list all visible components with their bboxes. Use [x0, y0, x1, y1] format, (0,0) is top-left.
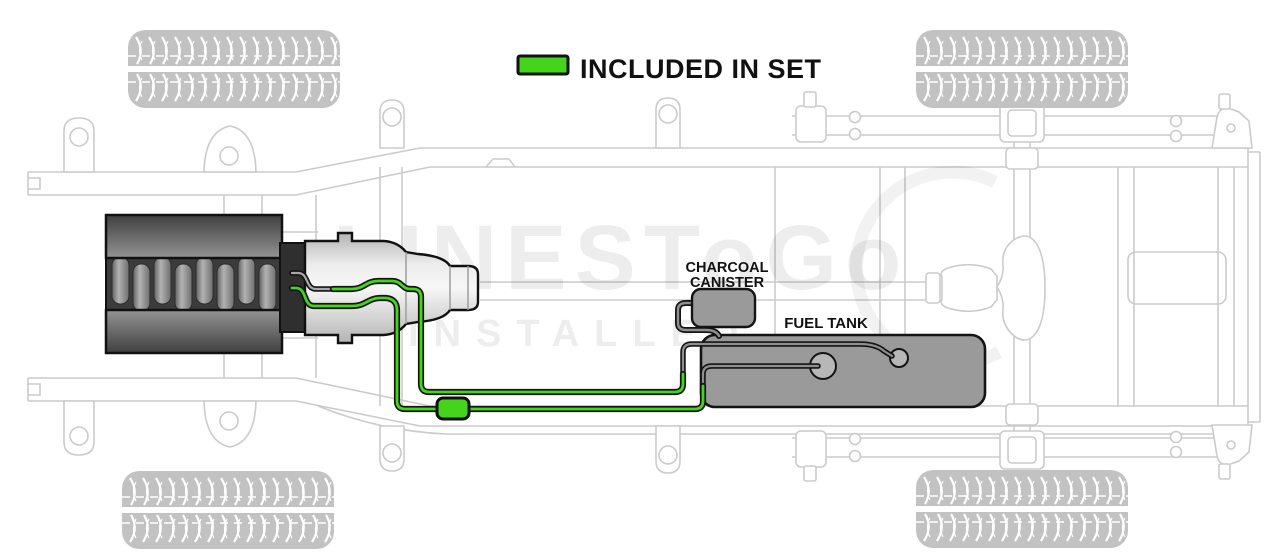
tire-front-right: [122, 471, 334, 549]
legend-swatch: [518, 56, 568, 74]
engine-block-bottom: [106, 310, 282, 353]
differential: [997, 236, 1045, 340]
tire-front-left: [128, 30, 340, 108]
engine: [106, 215, 305, 353]
engine-block-top: [106, 215, 282, 258]
fuel-line-diagram: LINESToGo INSTALLED: [0, 0, 1280, 558]
fuel-tank-label: FUEL TANK: [784, 315, 868, 332]
inline-fuel-filter: [437, 398, 469, 419]
charcoal-canister-label-line2: CANISTER: [690, 275, 765, 291]
legend: INCLUDED IN SET: [518, 54, 822, 84]
tire-rear-left: [916, 30, 1128, 108]
legend-label: INCLUDED IN SET: [580, 54, 822, 84]
spring-hanger: [796, 431, 826, 467]
spring-hanger: [796, 106, 826, 142]
charcoal-canister-label-line1: CHARCOAL: [686, 260, 769, 276]
tire-rear-right: [916, 470, 1128, 548]
diagram-svg: LINESToGo INSTALLED: [0, 0, 1280, 558]
driveshaft-yoke: [941, 265, 997, 312]
